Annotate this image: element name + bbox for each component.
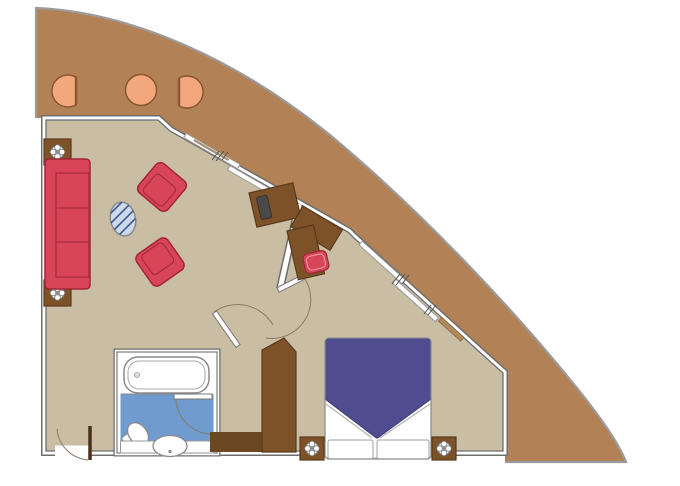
floor-plan-page (0, 0, 680, 486)
double-bed (325, 338, 431, 459)
bathroom (117, 352, 217, 457)
wardrobe-cabinet (262, 338, 296, 452)
tub-drain (135, 373, 140, 378)
sink-faucet (168, 450, 171, 453)
door-leaf (174, 394, 212, 399)
sofa (45, 159, 90, 289)
floor-plan-canvas (0, 0, 680, 486)
balcony-table (126, 75, 157, 106)
balcony-chair (52, 75, 76, 107)
balcony-chair (179, 76, 203, 108)
bathtub (124, 357, 209, 393)
sink-basin (153, 436, 187, 457)
bed-pillow (377, 440, 429, 459)
bed-pillow (328, 440, 373, 459)
entry-door-opening (55, 446, 91, 460)
